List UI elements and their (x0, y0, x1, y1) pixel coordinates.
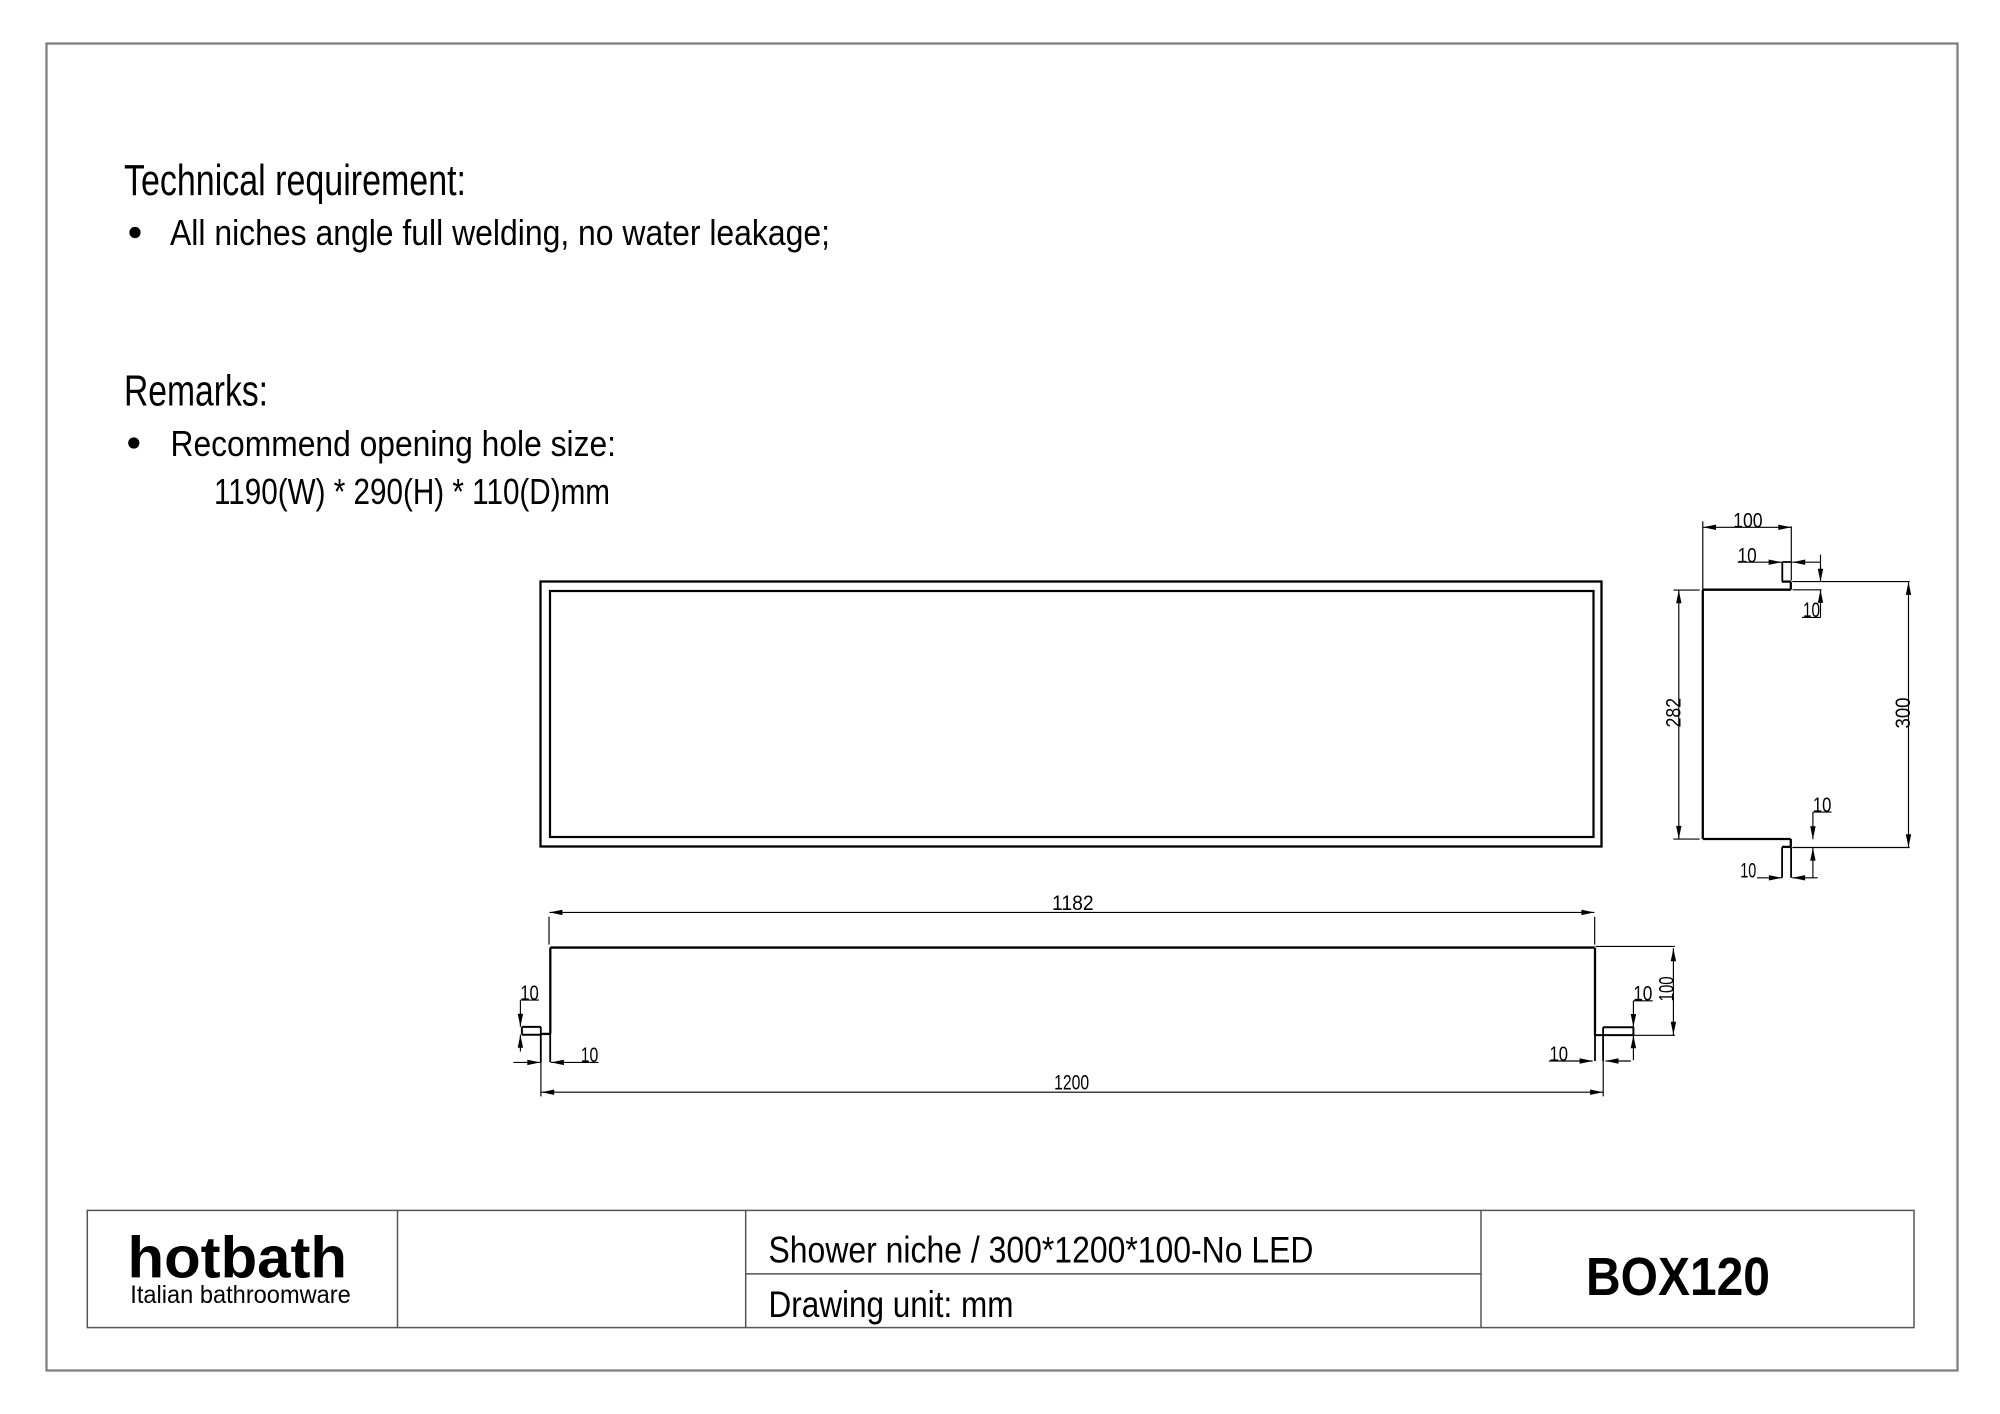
svg-text:Recommend opening hole size:: Recommend opening hole size: (171, 423, 617, 464)
svg-text:10: 10 (1813, 794, 1832, 817)
svg-text:10: 10 (581, 1044, 599, 1067)
svg-text:10: 10 (1740, 860, 1756, 883)
svg-text:Remarks:: Remarks: (124, 367, 268, 416)
svg-text:Italian bathroomware: Italian bathroomware (130, 1281, 350, 1309)
svg-text:Shower niche / 300*1200*100-N: Shower niche / 300*1200*100-No LED (769, 1229, 1314, 1270)
svg-text:10: 10 (520, 982, 539, 1005)
svg-text:300: 300 (1892, 698, 1915, 729)
svg-text:1200: 1200 (1054, 1071, 1089, 1094)
svg-text:Drawing unit: mm: Drawing unit: mm (769, 1284, 1014, 1325)
svg-text:1182: 1182 (1052, 892, 1094, 915)
svg-text:All niches angle full welding,: All niches angle full welding, no water … (170, 212, 830, 253)
svg-text:BOX120: BOX120 (1586, 1247, 1770, 1307)
svg-text:100: 100 (1733, 509, 1763, 532)
svg-text:10: 10 (1550, 1043, 1569, 1066)
svg-text:10: 10 (1738, 544, 1757, 567)
svg-text:10: 10 (1803, 599, 1820, 622)
svg-text:100: 100 (1655, 976, 1678, 1001)
svg-text:Technical requirement:: Technical requirement: (124, 156, 466, 205)
svg-text:10: 10 (1633, 983, 1652, 1006)
svg-text:1190(W) * 290(H) * 110(D)mm: 1190(W) * 290(H) * 110(D)mm (214, 471, 610, 512)
svg-text:282: 282 (1663, 698, 1686, 728)
